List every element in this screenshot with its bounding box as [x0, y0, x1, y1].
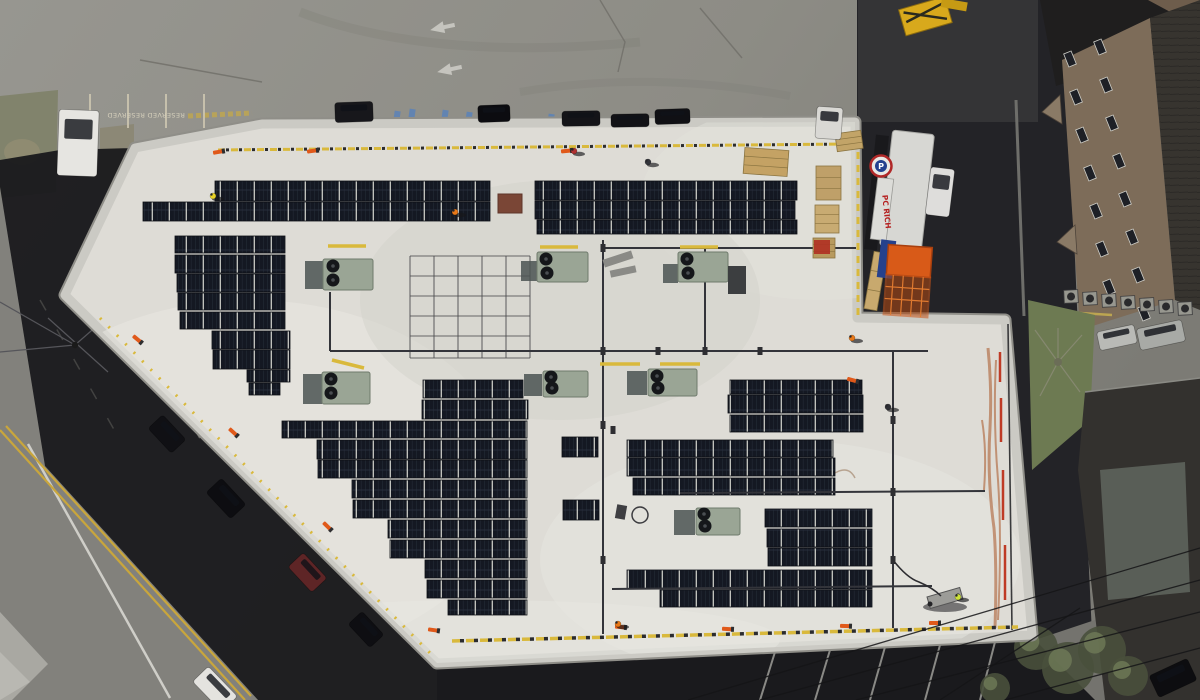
solar-array-row [175, 236, 285, 253]
vehicle-body [478, 104, 511, 122]
vehicle-windshield [820, 111, 839, 122]
tree-highlight [1084, 632, 1106, 654]
pallet-stack [815, 205, 839, 233]
flag-base [849, 624, 852, 629]
solar-array-row [563, 500, 599, 520]
solar-array-row [730, 415, 863, 432]
hvac-fan-hub [702, 512, 706, 516]
vehicle-windshield [340, 104, 367, 111]
solar-array-row [627, 458, 835, 476]
vehicle-body [562, 111, 600, 127]
reserved-stall-text: RESERVED [147, 111, 185, 119]
solar-array-row [180, 312, 285, 329]
ac-condenser [1083, 292, 1098, 306]
hvac-fan-hub [656, 386, 660, 390]
worker-head [955, 594, 957, 596]
solar-array-row [215, 181, 490, 201]
solar-array-row [660, 590, 872, 607]
worker-head [645, 159, 647, 161]
hvac-unit [303, 372, 370, 404]
solar-array-row [352, 480, 527, 498]
worker-head [885, 404, 887, 406]
vehicle-windshield [568, 113, 595, 118]
junction-box [891, 488, 896, 496]
solar-array-row [535, 181, 797, 200]
solar-array-row [768, 548, 872, 566]
ac-condenser [1159, 300, 1174, 314]
vehicle-body [611, 114, 649, 128]
hvac-fan-hub [686, 271, 690, 275]
aerial-photo-canvas: RESERVED RESERVED [0, 0, 1200, 700]
hvac-shadow [674, 510, 695, 535]
vehicle [478, 104, 511, 122]
material-pallet [743, 147, 789, 176]
vehicle-body [335, 101, 374, 122]
solar-array-row [390, 540, 527, 558]
tree-highlight [1049, 649, 1072, 672]
junction-box [601, 244, 606, 252]
solar-array-row [177, 274, 285, 292]
vehicle [611, 114, 649, 128]
vehicle [57, 109, 99, 176]
orange-lift-cage [884, 245, 933, 318]
roof-hatch [498, 194, 522, 213]
solar-array-row [249, 383, 280, 395]
solar-array-row [423, 380, 523, 398]
vehicle [815, 106, 843, 140]
vehicle-windshield [932, 174, 950, 190]
vehicle-windshield [483, 107, 506, 113]
solar-array-row [388, 520, 527, 538]
solar-array-row [353, 500, 527, 518]
store-logo-letter: P [878, 162, 884, 171]
hvac-fan-hub [545, 271, 549, 275]
roof-panel [1100, 462, 1190, 600]
ac-condenser [1064, 290, 1079, 304]
flag-base [731, 627, 734, 632]
rooftop-equipment-box [728, 266, 746, 294]
hvac-shadow [663, 264, 678, 283]
solar-array-row [448, 600, 527, 615]
vehicle-body [655, 108, 691, 124]
junction-box [703, 347, 708, 355]
tree-highlight [984, 677, 998, 691]
pallet-stack [816, 166, 841, 200]
hvac-fan-hub [549, 375, 553, 379]
pole-top [72, 342, 78, 348]
worker-head [849, 335, 851, 337]
hvac-shadow [305, 261, 323, 289]
junction-box [601, 556, 606, 564]
flag-body [722, 627, 732, 632]
solar-array-row [537, 220, 797, 234]
junction-box [758, 347, 763, 355]
hvac-fan-hub [329, 391, 333, 395]
solar-array-row [318, 460, 527, 478]
red-toolbox [814, 240, 830, 254]
hvac-fan-hub [329, 377, 333, 381]
hvac-fan-hub [703, 524, 707, 528]
solar-array-row [562, 437, 598, 457]
hvac-fan-hub [331, 264, 335, 268]
solar-array-row [765, 509, 872, 527]
solar-array-row [175, 255, 285, 273]
hvac-fan-hub [655, 374, 659, 378]
flag-body [929, 621, 939, 625]
hvac-shadow [303, 374, 322, 404]
solar-array-row [213, 350, 290, 369]
hvac-unit [524, 371, 588, 398]
solar-array-row [627, 440, 833, 457]
solar-array-row [178, 293, 285, 310]
ac-condenser [1178, 302, 1193, 316]
hvac-fan-hub [331, 278, 335, 282]
hvac-shadow [524, 374, 542, 396]
solar-array-row [730, 380, 862, 394]
worker-head [615, 621, 617, 623]
vehicle-windshield [660, 111, 685, 116]
hvac-unit [627, 369, 697, 396]
pallet-stack [743, 147, 789, 176]
hvac-shadow [521, 261, 537, 281]
junction-box [891, 416, 896, 424]
material-pallet [815, 205, 839, 233]
material-pallet [816, 166, 841, 200]
junction-box [656, 347, 661, 355]
solar-array-row [247, 370, 290, 382]
junction-box [601, 347, 606, 355]
solar-array-row [282, 421, 527, 438]
ac-condenser [1140, 298, 1155, 312]
solar-array-row [767, 529, 872, 547]
worker-head [571, 148, 573, 150]
vehicle [335, 101, 374, 122]
hvac-fan-hub [685, 257, 689, 261]
solar-array-row [427, 580, 527, 598]
vehicle-body [815, 106, 843, 140]
junction-box [611, 426, 616, 434]
hvac-fan-hub [544, 257, 548, 261]
hvac-shadow [627, 371, 647, 395]
hvac-fan-hub [550, 386, 554, 390]
aerial-photo-scene: RESERVED RESERVED [0, 0, 1200, 700]
vehicle-windshield [64, 119, 93, 140]
ac-condenser [1121, 296, 1136, 310]
worker-head [452, 209, 454, 211]
solar-array-row [535, 201, 795, 219]
vehicle [562, 111, 600, 127]
solar-array-row [143, 202, 490, 221]
solar-array-row [212, 331, 290, 349]
hvac-unit [674, 508, 740, 536]
hvac-unit [305, 259, 373, 290]
vehicle [655, 108, 691, 124]
solar-array-row [425, 560, 527, 578]
flag-body [840, 624, 850, 628]
solar-array-row [728, 395, 863, 413]
vehicle-windshield [617, 116, 644, 120]
worker-head [210, 193, 212, 195]
solar-array-row [317, 440, 527, 459]
reserved-stall-text: RESERVED [107, 111, 145, 119]
junction-box [601, 421, 606, 429]
ac-condenser [1102, 294, 1117, 308]
solar-array-row [422, 400, 528, 419]
